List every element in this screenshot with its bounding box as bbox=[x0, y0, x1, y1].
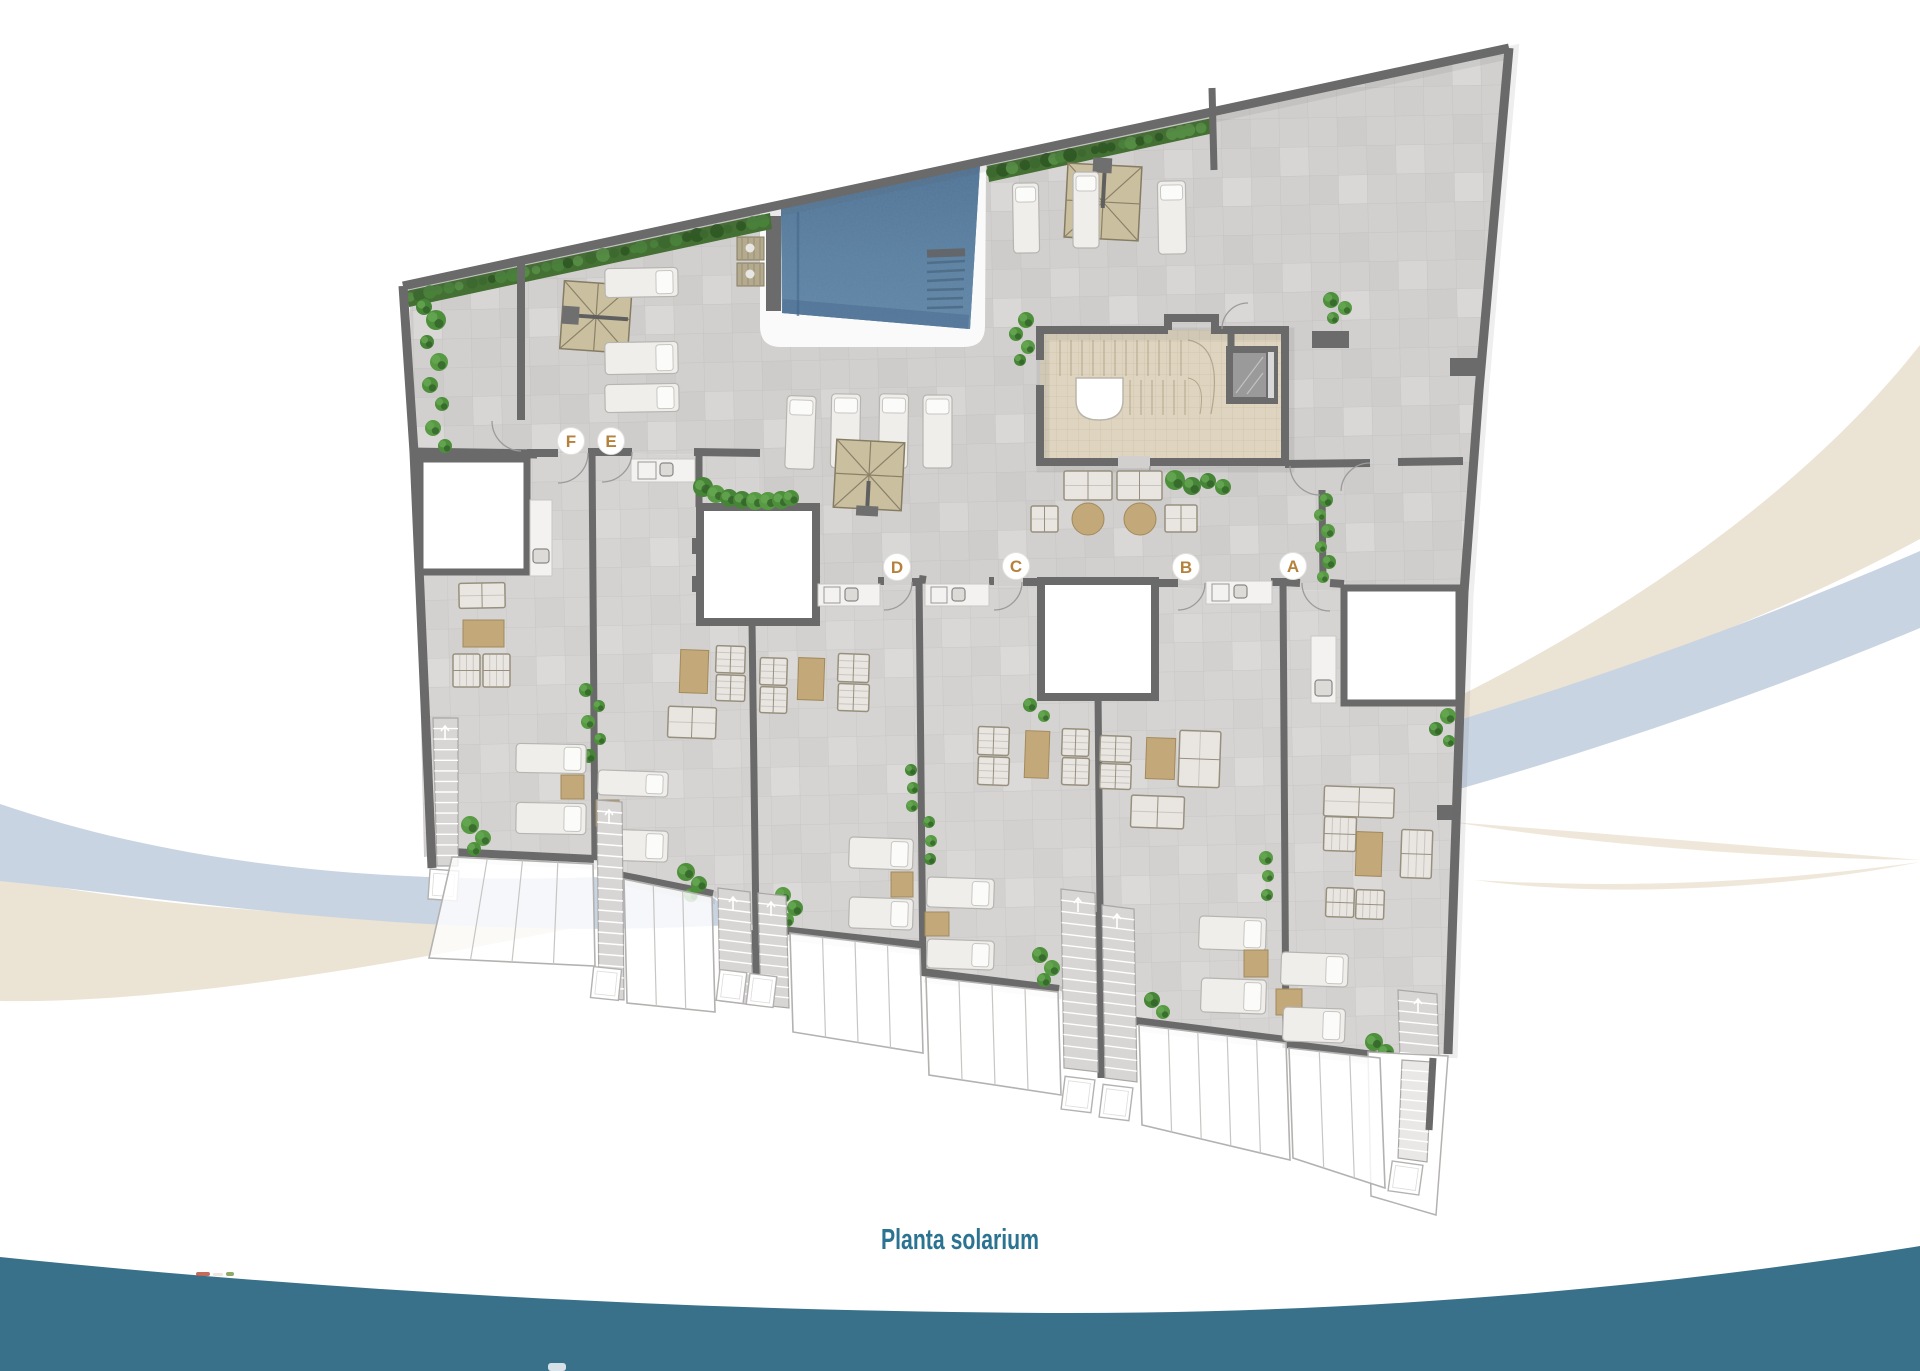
svg-text:A: A bbox=[1287, 557, 1299, 576]
svg-text:F: F bbox=[566, 432, 576, 451]
svg-text:B: B bbox=[1180, 558, 1192, 577]
svg-text:Planta solarium: Planta solarium bbox=[881, 1224, 1039, 1256]
svg-text:C: C bbox=[1010, 557, 1022, 576]
svg-text:E: E bbox=[605, 432, 616, 451]
svg-text:D: D bbox=[891, 558, 903, 577]
